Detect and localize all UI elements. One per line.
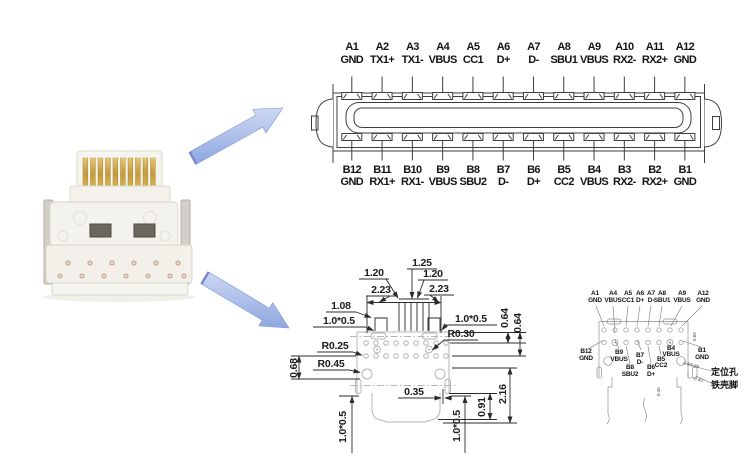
pin-b10-label: B10RX1- <box>397 164 427 190</box>
fp-pin-signal: VBUS <box>673 298 690 305</box>
fp-pin-hole <box>624 340 628 344</box>
pin-signal: SBU1 <box>549 54 579 67</box>
leader <box>356 312 371 318</box>
pin-signal: CC2 <box>549 176 579 189</box>
pin-signal: RX1- <box>397 176 427 189</box>
dim-label-total_h: 2.16 <box>497 384 509 404</box>
dim-label-pad_bl: 1.0*0.5 <box>337 411 349 443</box>
fp-pin-signal: D- <box>636 360 644 367</box>
side-slot-left <box>356 379 362 394</box>
fp-pin-hole <box>602 328 606 332</box>
pin-signal: GND <box>670 176 700 189</box>
pin-number: B7 <box>488 164 518 177</box>
pin-a2-label: A2TX1+ <box>367 41 397 67</box>
contact-dot <box>182 274 186 278</box>
pin-signal: RX2- <box>609 54 639 67</box>
leader <box>365 327 374 331</box>
pin-number: B3 <box>609 164 639 177</box>
pin-number: B11 <box>367 164 397 177</box>
pin-number: B1 <box>670 164 700 177</box>
leader <box>442 325 446 330</box>
pin-a1-label: A1GND <box>337 41 367 67</box>
pin-number: A7 <box>518 41 548 54</box>
pin-b8-label: B8SBU2 <box>458 164 488 190</box>
pin-hole <box>364 341 369 346</box>
fp-a5-label: A5CC1 <box>622 291 634 305</box>
arrow-to-pinout <box>190 108 283 164</box>
pin-hole <box>414 354 419 359</box>
contact-dot <box>66 261 70 265</box>
pin-signal: D- <box>488 176 518 189</box>
pin-number: A4 <box>428 41 458 54</box>
dim-label-span_b: 2.23 <box>429 283 449 295</box>
contact-dot <box>146 274 150 278</box>
fp-pin-signal: GND <box>588 298 602 305</box>
pin-signal: D+ <box>488 54 518 67</box>
pin-number: A10 <box>609 41 639 54</box>
fp-a4-label: A4VBUS <box>604 291 621 305</box>
fp-pin-signal: VBUS <box>604 298 621 305</box>
pin-b5-label: B5CC2 <box>549 164 579 190</box>
pin-a4-label: A4VBUS <box>428 41 458 67</box>
pin-signal: RX2- <box>609 176 639 189</box>
fp-a6-label: A6D+ <box>636 291 644 305</box>
leader <box>430 295 439 302</box>
pin-number: A2 <box>367 41 397 54</box>
fp-pin-signal: VBUS <box>662 352 679 359</box>
pin-hole <box>394 341 399 346</box>
pin-number: B10 <box>397 164 427 177</box>
fp-a1-label: A1GND <box>588 291 602 305</box>
pin-hole <box>404 354 409 359</box>
fp-pin-hole <box>668 328 672 332</box>
fp-small-dim-side_h: 0.45 <box>656 387 661 396</box>
pin-signal: GND <box>337 176 367 189</box>
dim-label-pad_br: 1.0*0.5 <box>451 410 463 442</box>
dim-label-pad_tr: 1.0*0.5 <box>455 313 487 325</box>
arrow-to-dimensions <box>201 272 289 328</box>
fp-b4-label: B4VBUS <box>662 346 679 360</box>
fp-pin-signal: SBU1 <box>654 298 671 305</box>
pin-a6-label: A6D+ <box>488 41 518 67</box>
pin-b6-label: B6D+ <box>518 164 548 190</box>
plug-body <box>50 202 178 246</box>
fp-pin-signal: CC1 <box>622 298 634 305</box>
pin-number: B6 <box>518 164 548 177</box>
pin-b2-label: B2RX2+ <box>640 164 670 190</box>
pin-b9-label: B9VBUS <box>428 164 458 190</box>
alignment-hole-center <box>428 349 430 351</box>
pin-number: B8 <box>458 164 488 177</box>
fp-pin-hole <box>679 328 683 332</box>
pin-signal: D- <box>518 54 548 67</box>
shell-outer <box>333 93 705 151</box>
pin-hole <box>374 341 379 346</box>
contact-dot <box>124 274 128 278</box>
dim-label-tab_offset: 1.08 <box>331 300 351 312</box>
pin-b1-label: B1GND <box>670 164 700 190</box>
dim-label-r_locate: R0.45 <box>317 358 344 370</box>
dim-label-edge_off: 0.68 <box>288 358 300 378</box>
pin-signal: TX1- <box>397 54 427 67</box>
fp-b8-label: B8SBU2 <box>622 365 639 379</box>
fp-pin-signal: SBU2 <box>622 372 639 379</box>
pin-signal: TX1+ <box>367 54 397 67</box>
pin-hole <box>424 341 429 346</box>
pin-hole <box>384 341 389 346</box>
dim-label-row_gap_b: 0.64 <box>512 313 524 333</box>
connector-datasheet-figure: A1GNDA2TX1+A3TX1-A4VBUSA5CC1A6D+A7D-A8SB… <box>0 0 754 471</box>
pin-signal: GND <box>670 54 700 67</box>
pin-signal: RX2+ <box>640 176 670 189</box>
tab-brackets <box>375 318 440 331</box>
pin-a11-label: A11RX2+ <box>640 41 670 67</box>
pin-hole <box>404 341 409 346</box>
fp-pin-signal: D+ <box>647 372 655 379</box>
fp-a8-label: A8SBU1 <box>654 291 671 305</box>
leader <box>418 280 425 298</box>
pin-hole <box>424 354 429 359</box>
contact-dot <box>58 274 62 278</box>
pin-hole <box>384 354 389 359</box>
annotation-shell-foot: 铁壳脚 <box>711 378 738 391</box>
pin-hole <box>434 341 439 346</box>
pin-signal: VBUS <box>428 54 458 67</box>
pin-signal: VBUS <box>579 176 609 189</box>
side-slot-right <box>445 379 451 394</box>
leader <box>380 296 391 302</box>
extension-lines <box>367 296 441 333</box>
pin-number: B4 <box>579 164 609 177</box>
line-art-canvas <box>0 0 754 471</box>
pin-number: B9 <box>428 164 458 177</box>
pin-a9-label: A9VBUS <box>579 41 609 67</box>
base-lip <box>52 283 188 295</box>
pin-a3-label: A3TX1- <box>397 41 427 67</box>
mid-step <box>70 186 170 204</box>
dim-label-pad_tl: 1.0*0.5 <box>323 315 355 327</box>
end-cap-left <box>316 99 333 147</box>
pin-signal: SBU2 <box>458 176 488 189</box>
pin-labels-row-a: A1GNDA2TX1+A3TX1-A4VBUSA5CC1A6D+A7D-A8SB… <box>337 41 700 67</box>
pin-signal: RX1+ <box>367 176 397 189</box>
pin-hole <box>414 341 419 346</box>
fp-break-lines <box>607 398 682 424</box>
pin-number: A5 <box>458 41 488 54</box>
pin-hole <box>364 354 369 359</box>
contact-dot <box>80 274 84 278</box>
dim-label-r_pin: R0.25 <box>321 340 348 352</box>
pin-number: A11 <box>640 41 670 54</box>
pin-a10-label: A10RX2- <box>609 41 639 67</box>
locating-hole-right <box>435 369 445 379</box>
pin-signal: D+ <box>518 176 548 189</box>
pin-signal: VBUS <box>579 54 609 67</box>
contact-dot <box>176 261 180 265</box>
fp-b9-label: B9VBUS <box>610 350 627 364</box>
fp-pin-holes <box>602 328 683 346</box>
pin-number: A12 <box>670 41 700 54</box>
leader <box>349 370 360 372</box>
callout-arrows <box>190 108 289 328</box>
pin-b11-label: B11RX1+ <box>367 164 397 190</box>
pin-hole <box>444 354 449 359</box>
pin-number: B2 <box>640 164 670 177</box>
fp-small-dim-edge_r: 0.60 <box>692 332 697 341</box>
alignment-hole-center <box>376 349 378 351</box>
fp-b1-label: B1GND <box>695 348 709 362</box>
pin-number: A1 <box>337 41 367 54</box>
fp-pin-signal: GND <box>579 356 593 363</box>
pin-number: A8 <box>549 41 579 54</box>
pin-number: A9 <box>579 41 609 54</box>
pin-hole <box>444 341 449 346</box>
dim-label-slot_w: 0.35 <box>404 386 424 398</box>
pin-hole <box>434 354 439 359</box>
pin-signal: RX2+ <box>640 54 670 67</box>
pin-number: A3 <box>397 41 427 54</box>
contact-dot <box>110 261 114 265</box>
locating-hole-left <box>362 369 372 379</box>
dimension-footprint-outline <box>350 332 456 422</box>
dim-label-row_gap_a: 0.64 <box>499 308 511 328</box>
fp-pin-signal: CC2 <box>655 363 667 370</box>
fp-pin-signal: GND <box>695 355 709 362</box>
solder-tabs <box>399 303 429 332</box>
fp-pin-hole <box>657 340 661 344</box>
pin-a12-label: A12GND <box>670 41 700 67</box>
pin-number: A6 <box>488 41 518 54</box>
contact-dot <box>132 261 136 265</box>
pin-number: B12 <box>337 164 367 177</box>
fp-pin-hole <box>657 328 661 332</box>
pin-signal: CC1 <box>458 54 488 67</box>
fp-pin-hole <box>635 328 639 332</box>
pin-a7-label: A7D- <box>518 41 548 67</box>
fp-pin-hole <box>646 328 650 332</box>
pin-labels-row-b: B12GNDB11RX1+B10RX1-B9VBUSB8SBU2B7D-B6D+… <box>337 164 700 190</box>
pin-signal: VBUS <box>428 176 458 189</box>
contact-dot <box>168 274 172 278</box>
pin-b3-label: B3RX2- <box>609 164 639 190</box>
fp-b12-label: B12GND <box>579 349 593 363</box>
pin-b4-label: B4VBUS <box>579 164 609 190</box>
fp-a12-label: A12GND <box>696 291 710 305</box>
fp-pin-hole <box>624 328 628 332</box>
pin-number: B5 <box>549 164 579 177</box>
pin-a5-label: A5CC1 <box>458 41 488 67</box>
pin-b7-label: B7D- <box>488 164 518 190</box>
latch-slot-right <box>134 224 155 237</box>
contact-dot <box>88 261 92 265</box>
contact-dot <box>102 274 106 278</box>
dim-label-r_hole: R0.30 <box>447 328 474 340</box>
pin-a8-label: A8SBU1 <box>549 41 579 67</box>
pin-hole <box>394 354 399 359</box>
dim-label-body_h: 0.91 <box>476 397 488 417</box>
pin-b12-label: B12GND <box>337 164 367 190</box>
fp-pin-signal: D+ <box>636 298 644 305</box>
fp-pin-signal: VBUS <box>610 357 627 364</box>
dim-label-span_a: 2.23 <box>371 284 391 296</box>
latch-slot-left <box>90 224 111 237</box>
annotation-positioning-hole: 定位孔 <box>711 365 738 378</box>
body-extension-lines <box>438 394 497 420</box>
contact-dot <box>154 261 158 265</box>
fp-pin-hole <box>679 340 683 344</box>
fp-pin-signal: GND <box>696 298 710 305</box>
fp-b7-label: B7D- <box>636 353 644 367</box>
pin-hole <box>374 354 379 359</box>
dim-label-pitch_c: 1.20 <box>423 268 443 280</box>
connector-photo <box>43 151 195 302</box>
contact-tip-cap <box>79 152 160 158</box>
fp-a9-label: A9VBUS <box>673 291 690 305</box>
pin-signal: GND <box>337 54 367 67</box>
dim-label-pitch_b: 1.20 <box>364 267 384 279</box>
fp-pin-hole <box>646 340 650 344</box>
connector-front-drawing <box>312 77 722 164</box>
